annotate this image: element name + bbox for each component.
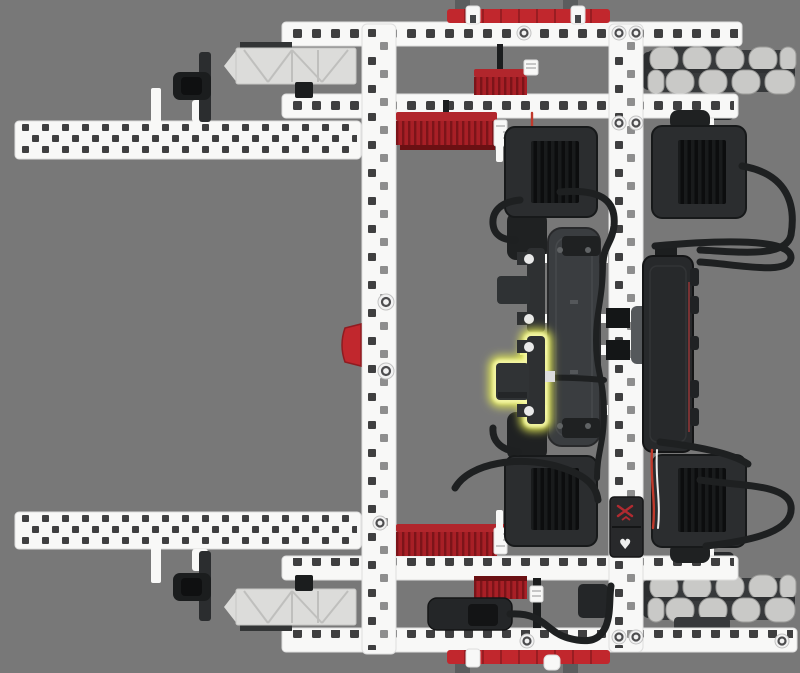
brain-port [690, 380, 699, 398]
heart-led-glyph: ♥ [619, 537, 632, 553]
standoff-ring-top [517, 26, 531, 40]
channel-clamp [606, 340, 630, 360]
frame-beam-bottom [282, 628, 797, 652]
brain-port [690, 336, 699, 350]
smart-motor-bottom-right [652, 455, 746, 563]
battery-plate [548, 228, 600, 446]
robot-render-canvas[interactable]: ♥ [0, 0, 800, 673]
frame-beam-top [282, 22, 742, 46]
truss-connector-top [295, 82, 313, 98]
brain-port [690, 296, 699, 314]
white-post-bottom-left [151, 547, 161, 583]
motor-vent [678, 140, 726, 204]
omni-rollers-row1 [650, 47, 796, 71]
motor-vent [531, 468, 579, 530]
gear-small-top [474, 69, 527, 77]
axle-top [497, 44, 503, 72]
robot-brain [643, 244, 699, 452]
brain-port [690, 268, 699, 286]
red-clip-left [342, 324, 361, 366]
smart-motor-top-right [652, 110, 746, 218]
channel-clamp [606, 308, 630, 328]
frame-beam-upper [282, 94, 738, 118]
omni-rollers-row2 [648, 70, 795, 94]
gear-large-top [396, 112, 497, 121]
standoff-ring-bottom [520, 634, 534, 648]
truss-connector-bottom [295, 575, 313, 591]
brain-port [690, 408, 699, 426]
robot-render-stage: ♥ [0, 0, 800, 673]
gear-small-bottom [474, 581, 527, 599]
sensor-box-bottom [578, 584, 608, 618]
white-post-top-left [151, 88, 161, 124]
c-channel-left [362, 24, 396, 654]
touch-led-sensor: ♥ [610, 497, 643, 557]
